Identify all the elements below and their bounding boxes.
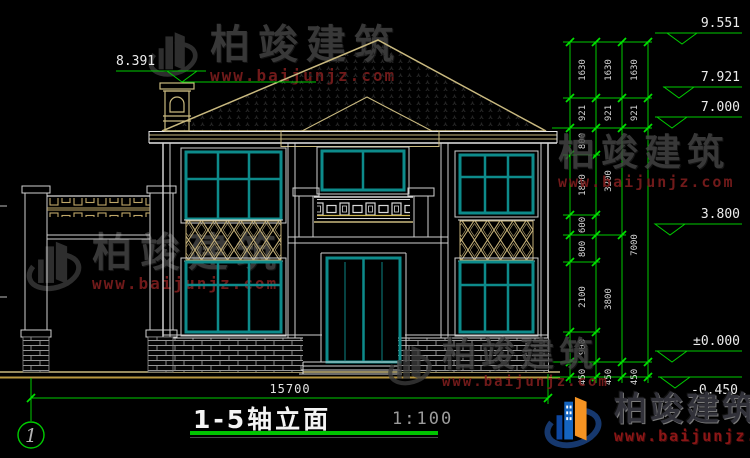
watermark-url: www.baijunjz.com [442, 374, 609, 391]
axis-number: 1 [25, 425, 37, 447]
courtyard-fence [21, 186, 177, 372]
dim-label: 3800 [604, 288, 614, 310]
dim-label: 1630 [604, 59, 614, 81]
dim-label: 7000 [630, 234, 640, 256]
lattice-panel-right [458, 220, 535, 261]
elevation-label-ridge: 9.551 [701, 16, 740, 31]
watermark-url: www.baijunjz.com [558, 173, 735, 191]
elevation-label-chimney: 8.391 [116, 54, 155, 69]
watermark-right: 柏竣建筑 www.baijunjz.com [558, 134, 735, 191]
drawing-scale: 1:100 [392, 409, 453, 429]
elevation-label-eave: 7.000 [701, 100, 740, 115]
dim-label: 1630 [578, 59, 588, 81]
dim-label: 921 [630, 105, 640, 121]
chimney [160, 83, 194, 131]
watermark-brand: 柏竣建筑 [558, 134, 735, 173]
overall-width-dim: 15700 [269, 382, 310, 396]
second-floor-window-center [317, 147, 409, 194]
dim-label: 450 [630, 369, 640, 385]
first-floor-window-left [181, 258, 286, 336]
dim-label: 800 [578, 241, 588, 257]
dim-label: 600 [578, 217, 588, 233]
first-floor-window-right [455, 258, 538, 336]
dim-label: 1630 [630, 59, 640, 81]
lattice-panel-left [184, 220, 283, 261]
watermark-brand: 柏竣建筑 [614, 392, 750, 427]
second-floor-window-right [455, 151, 538, 217]
roof [149, 40, 557, 147]
dim-label: 2100 [578, 286, 588, 308]
balcony-railing [293, 188, 434, 237]
baijun-logo-icon [386, 338, 434, 394]
elevation-label-zero: ±0.000 [693, 334, 740, 349]
title-underline-thin [190, 437, 438, 438]
watermark-url: www.baijunjz.com [614, 427, 750, 445]
dim-label: 921 [604, 105, 614, 121]
baijun-logo-color-icon [540, 392, 606, 454]
watermark-brand: 柏竣建筑 [442, 338, 609, 374]
cad-elevation-screenshot: 柏竣建筑 www.baijunjz.com 柏竣建筑 www.baijunjz.… [0, 0, 750, 458]
title-underline [190, 431, 438, 435]
second-floor-window-left [181, 148, 286, 223]
watermark-bottom: 柏竣建筑 www.baijunjz.com [386, 338, 609, 394]
dim-label: 921 [578, 105, 588, 121]
elevation-label-roof: 7.921 [701, 70, 740, 85]
elevation-label-window: 3.800 [701, 207, 740, 222]
watermark-corner-logo: 柏竣建筑 www.baijunjz.com [540, 392, 750, 454]
